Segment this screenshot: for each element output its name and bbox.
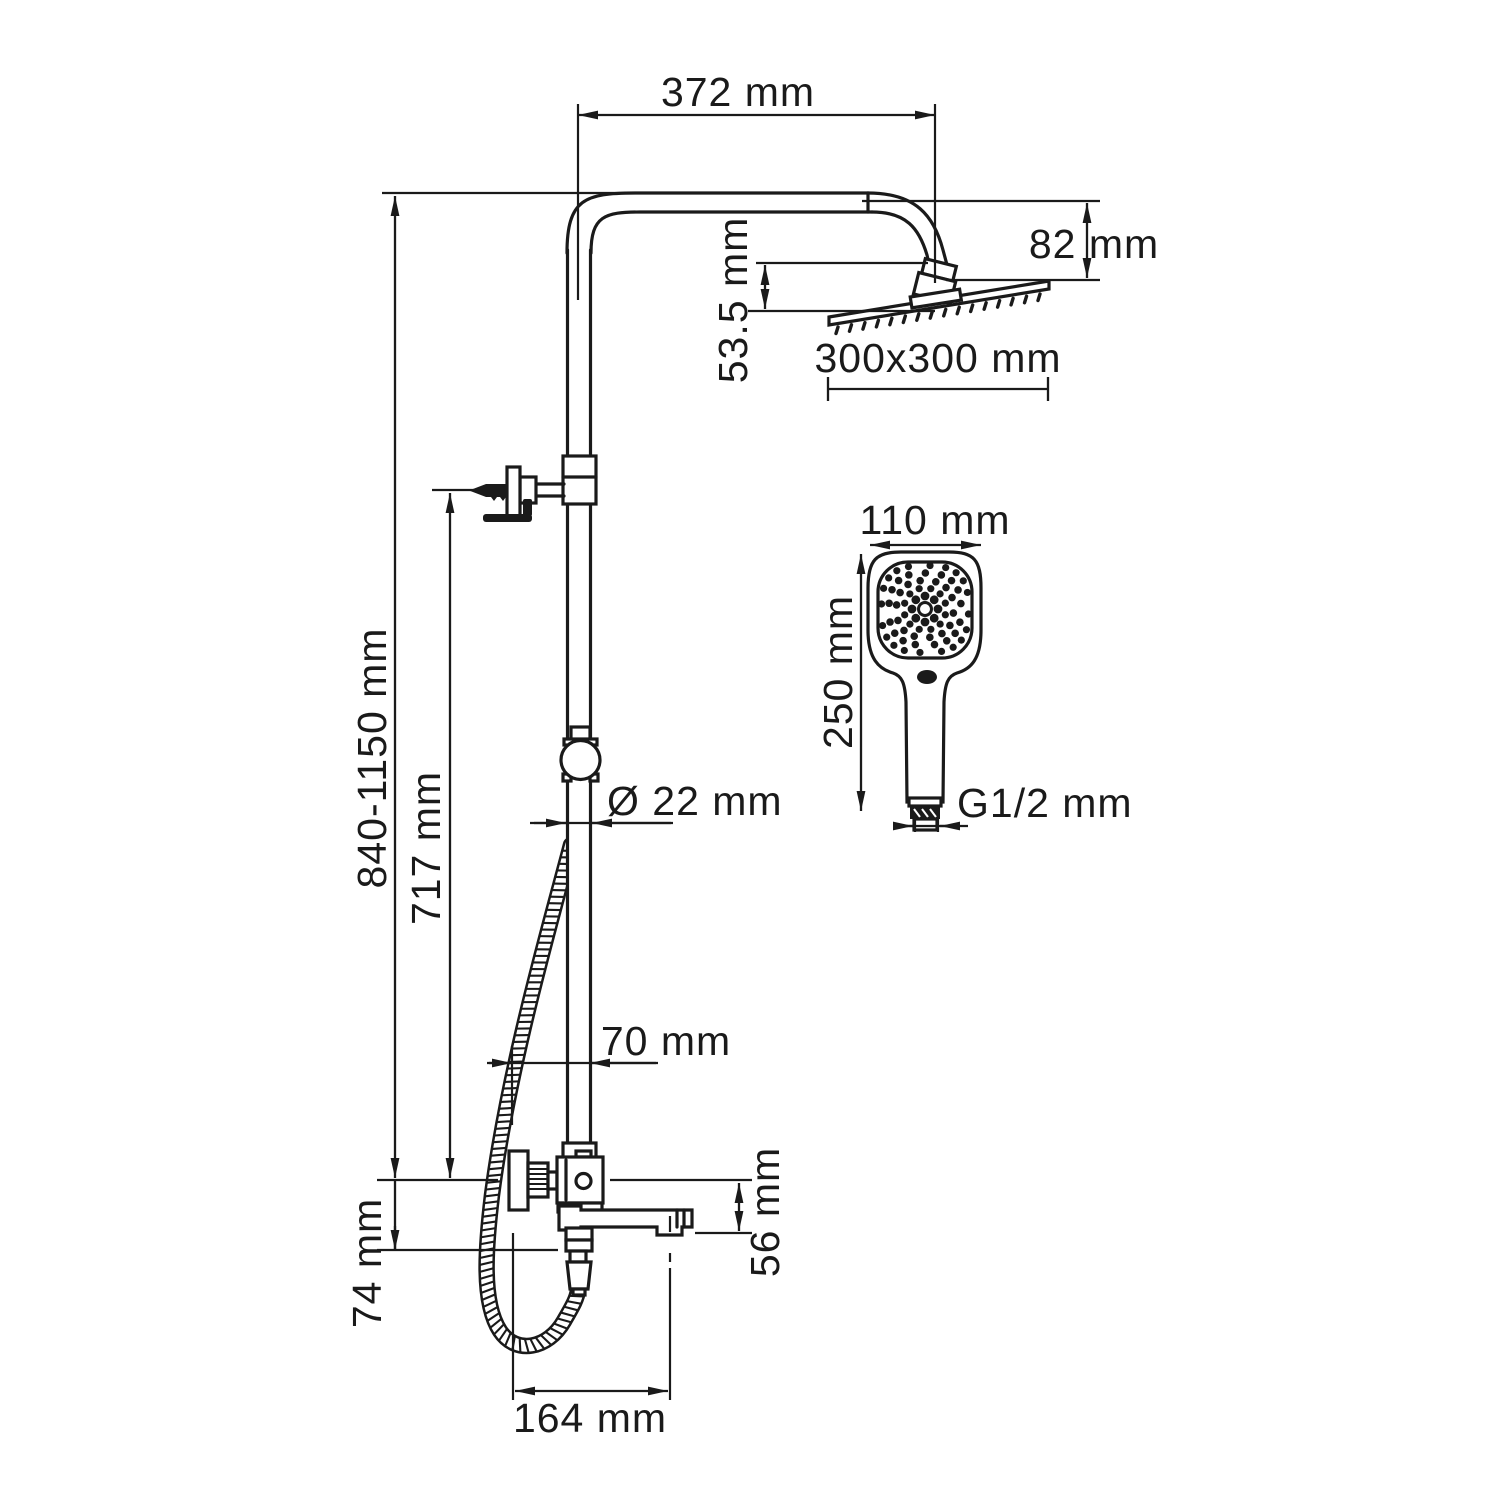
dim-label-82: 82 mm [1029, 221, 1159, 267]
technical-drawing-page: 372 mm 82 mm 53.5 mm 300x300 mm 110 mm 2… [0, 0, 1500, 1500]
dim-label-372: 372 mm [661, 69, 815, 115]
riser-coupler [563, 456, 596, 504]
dim-label-840-1150: 840-1150 mm [349, 628, 395, 889]
dim-label-717: 717 mm [403, 771, 449, 925]
rain-shower-head [829, 258, 1049, 334]
thread-nipple [914, 819, 937, 830]
wall-screw [469, 484, 507, 501]
dim-label-56: 56 mm [742, 1147, 788, 1277]
handle-plate [509, 1151, 528, 1210]
dimension-labels: 372 mm 82 mm 53.5 mm 300x300 mm 110 mm 2… [344, 69, 1159, 1441]
dim-label-53-5: 53.5 mm [710, 217, 756, 384]
handle-knob [528, 1163, 548, 1197]
wall-plate [507, 467, 520, 517]
dim-label-74: 74 mm [344, 1198, 390, 1328]
mode-button [917, 670, 937, 684]
dim-label-g12: G1/2 mm [957, 780, 1133, 826]
hook-arm [483, 514, 532, 522]
hook [523, 499, 532, 516]
dim-label-250: 250 mm [815, 595, 861, 749]
dim-label-70: 70 mm [601, 1018, 731, 1064]
diverter-dot [576, 1174, 591, 1189]
dim-label-22: Ø 22 mm [607, 778, 783, 824]
hose-fitting [566, 1228, 592, 1295]
dim-label-164: 164 mm [513, 1395, 667, 1441]
mixer-assembly [509, 1143, 692, 1295]
dim-label-300x300: 300x300 mm [814, 335, 1061, 381]
dim-label-110: 110 mm [859, 497, 1010, 543]
shower-system-diagram: 372 mm 82 mm 53.5 mm 300x300 mm 110 mm 2… [0, 0, 1500, 1500]
